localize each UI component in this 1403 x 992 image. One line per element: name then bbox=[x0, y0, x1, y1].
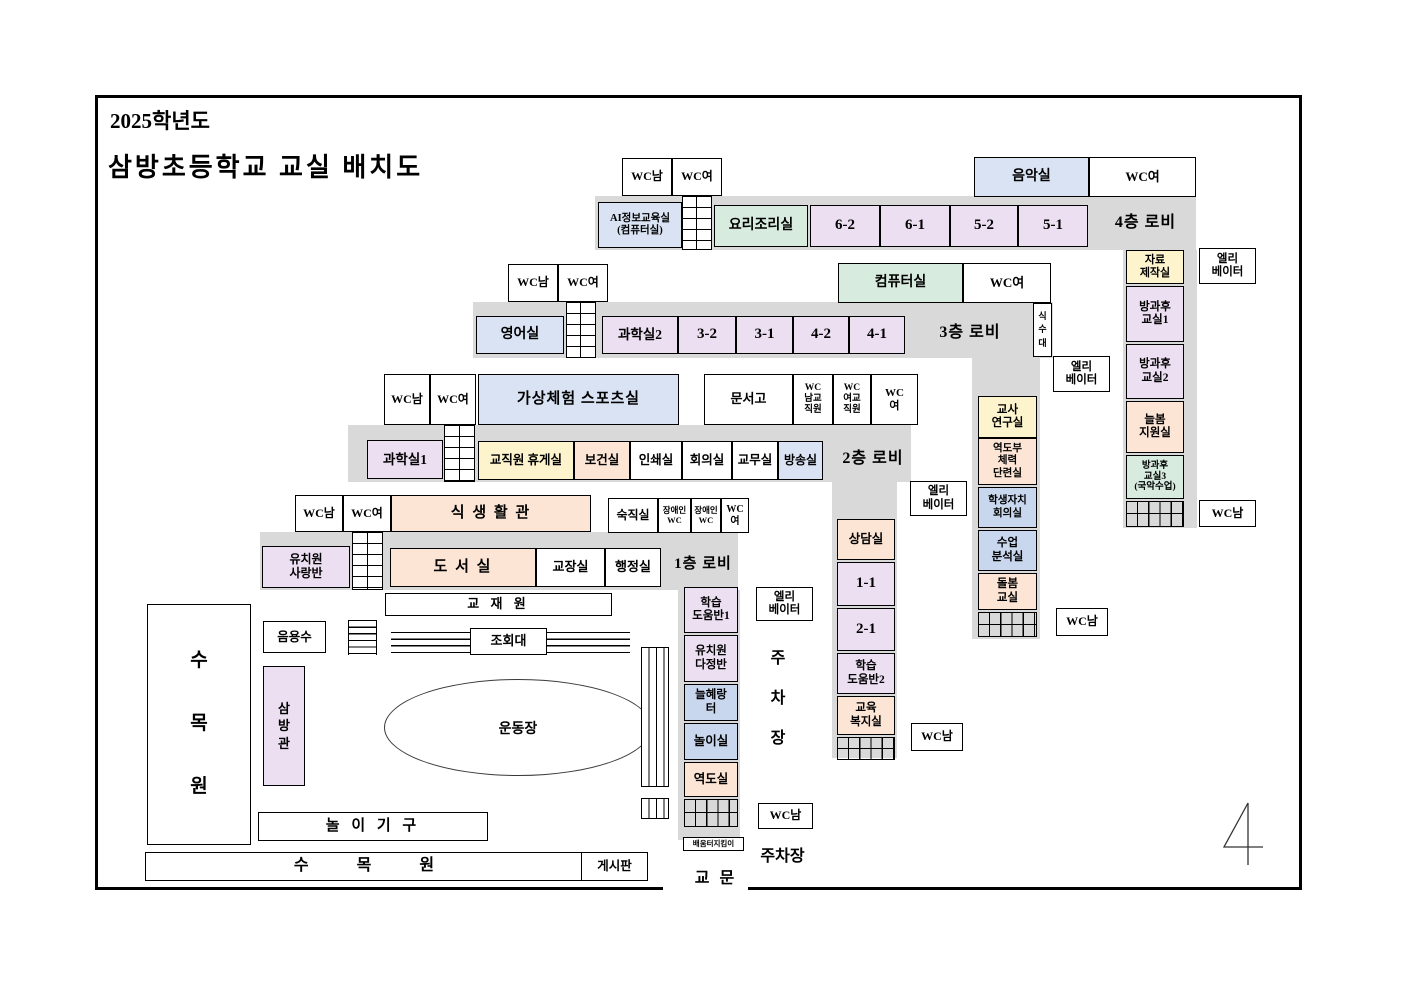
f3-lobby-label: 3층 로비 bbox=[925, 320, 1015, 346]
f1-wc-female: WC여 bbox=[343, 495, 391, 532]
school-gate-label: 교 문 bbox=[688, 869, 744, 889]
frame-top bbox=[95, 95, 1302, 98]
f3-wc-male: WC남 bbox=[508, 264, 558, 302]
room-science-2: 과학실2 bbox=[602, 316, 678, 354]
room-kinder-dajeong: 유치원 다정반 bbox=[684, 635, 738, 682]
play-equipment: 놀 이 기 구 bbox=[258, 812, 488, 841]
room-edu-welfare: 교육 복지실 bbox=[837, 696, 895, 735]
page-title: 삼방초등학교 교실 배치도 bbox=[108, 150, 528, 186]
f2-wc-staff-male: WC 남교 직원 bbox=[793, 374, 833, 425]
room-meeting: 회의실 bbox=[682, 441, 732, 480]
room-library: 도 서 실 bbox=[390, 548, 536, 587]
room-staff-lounge: 교직원 휴게실 bbox=[478, 441, 574, 480]
playfield-label: 운동장 bbox=[499, 718, 538, 738]
f3-wing-wc-male: WC남 bbox=[1056, 608, 1108, 636]
small-steps-icon bbox=[348, 620, 377, 655]
frame-right bbox=[1299, 95, 1302, 890]
f4-wing-stairs-icon bbox=[1126, 501, 1184, 527]
room-weightlifting-training: 역도부 체력 단련실 bbox=[978, 438, 1037, 485]
room-night-duty: 숙직실 bbox=[608, 498, 658, 533]
assembly-stand-lines-right bbox=[547, 632, 630, 653]
room-cooking: 요리조리실 bbox=[714, 205, 808, 247]
f2-wc-staff-female: WC 여교 직원 bbox=[833, 374, 871, 425]
frame-bottom-right bbox=[748, 887, 1302, 890]
room-lesson-analysis: 수업 분석실 bbox=[978, 530, 1037, 571]
room-5-1: 5-1 bbox=[1018, 205, 1088, 247]
f3-wc-female-right: WC여 bbox=[963, 263, 1051, 303]
room-5-2: 5-2 bbox=[950, 205, 1018, 247]
room-english: 영어실 bbox=[476, 316, 564, 354]
f2-wing-wc-male: WC남 bbox=[911, 723, 963, 751]
room-teachers-office: 교무실 bbox=[732, 441, 778, 480]
f3-wing-stairs-icon bbox=[978, 612, 1037, 637]
room-6-2: 6-2 bbox=[810, 205, 880, 247]
assembly-stand-lines-left bbox=[391, 632, 470, 653]
f4-elevator: 엘리 베이터 bbox=[1199, 248, 1256, 284]
room-material-making: 자료 제작실 bbox=[1126, 250, 1184, 284]
drinking-water: 음용수 bbox=[263, 621, 326, 653]
f2-lobby-label: 2층 로비 bbox=[833, 446, 913, 472]
room-ai-computer: AI정보교육실 (컴퓨터실) bbox=[598, 202, 682, 248]
bulletin-board: 게시판 bbox=[581, 852, 648, 881]
assembly-stand: 조회대 bbox=[470, 628, 547, 655]
teaching-materials-garden: 교 재 원 bbox=[385, 593, 612, 616]
f3-stairs-icon bbox=[566, 302, 596, 358]
room-music: 음악실 bbox=[974, 157, 1089, 197]
room-weightlifting: 역도실 bbox=[684, 762, 738, 797]
arboretum-left: 수 목 원 bbox=[147, 604, 251, 845]
f1-stairs-icon bbox=[352, 532, 383, 590]
room-learning-help-1: 학습 도움반1 bbox=[684, 587, 738, 633]
f2-elevator: 엘리 베이터 bbox=[910, 481, 967, 516]
parking-side-label: 주 차 장 bbox=[763, 643, 793, 755]
f3-water-fountain: 식 수 대 bbox=[1033, 303, 1052, 357]
room-afterschool-1: 방과후 교실1 bbox=[1126, 286, 1184, 342]
room-dining-hall: 식 생 활 관 bbox=[391, 495, 591, 532]
f2-wing-stairs-icon bbox=[837, 737, 895, 760]
room-kinder-sarang: 유치원 사랑반 bbox=[262, 546, 350, 588]
room-admin: 행정실 bbox=[605, 548, 661, 587]
f4-stairs-icon bbox=[682, 196, 712, 250]
room-1-1: 1-1 bbox=[837, 562, 895, 606]
f2-wc-female: WC여 bbox=[430, 374, 476, 425]
room-broadcast: 방송실 bbox=[778, 441, 823, 480]
f4-wc-female: WC여 bbox=[672, 158, 722, 196]
room-health: 보건실 bbox=[574, 441, 630, 480]
room-computer: 컴퓨터실 bbox=[838, 263, 963, 303]
guard-post: 배움터지킴이 bbox=[683, 837, 744, 851]
room-archive: 문서고 bbox=[704, 374, 793, 425]
f4-wc-female-right: WC여 bbox=[1089, 157, 1196, 197]
room-afterschool-3: 방과후 교실3 (국악수업) bbox=[1126, 455, 1184, 499]
room-afterschool-2: 방과후 교실2 bbox=[1126, 344, 1184, 399]
room-student-council: 학생자치 회의실 bbox=[978, 487, 1037, 528]
f1-wc-male: WC남 bbox=[295, 495, 343, 532]
school-year: 2025학년도 bbox=[110, 106, 310, 136]
parking-label: 주차장 bbox=[750, 847, 815, 867]
room-counseling: 상담실 bbox=[837, 519, 895, 560]
arboretum-bottom: 수 목 원 bbox=[145, 852, 583, 881]
room-science-1: 과학실1 bbox=[367, 440, 443, 479]
f2-wc-male: WC남 bbox=[384, 374, 430, 425]
f3-wc-female: WC여 bbox=[558, 264, 608, 302]
f1-wing-stairs-icon bbox=[684, 799, 738, 827]
f1-lobby-label: 1층 로비 bbox=[668, 552, 738, 578]
f1-wc-female-right: WC 여 bbox=[721, 498, 749, 533]
f4-lobby-label: 4층 로비 bbox=[1098, 210, 1193, 236]
sambang-hall: 삼 방 관 bbox=[263, 666, 305, 786]
room-6-1: 6-1 bbox=[880, 205, 950, 247]
f2-wc-female-right: WC 여 bbox=[871, 374, 918, 425]
room-learning-help-2: 학습 도움반2 bbox=[837, 653, 895, 694]
room-4-2: 4-2 bbox=[793, 316, 849, 354]
room-print: 인쇄실 bbox=[630, 441, 682, 480]
f1-wc-disabled-2: 장애인 WC bbox=[691, 498, 721, 533]
f1-wing-wc-male: WC남 bbox=[758, 803, 813, 829]
room-dolbom-class: 돌봄 교실 bbox=[978, 573, 1037, 610]
bleachers-small bbox=[641, 798, 669, 819]
room-neulbom-support: 늘봄 지원실 bbox=[1126, 401, 1184, 453]
room-3-2: 3-2 bbox=[678, 316, 736, 354]
room-vr-sports: 가상체험 스포츠실 bbox=[478, 374, 679, 425]
room-2-1: 2-1 bbox=[837, 608, 895, 651]
room-neulhaerang: 늘혜랑 터 bbox=[684, 684, 738, 721]
f2-stairs-icon bbox=[444, 425, 475, 482]
playfield-ellipse: 운동장 bbox=[384, 679, 652, 776]
f4-wc-male: WC남 bbox=[622, 158, 672, 196]
room-teacher-research: 교사 연구실 bbox=[978, 396, 1037, 438]
f3-elevator: 엘리 베이터 bbox=[1053, 356, 1110, 392]
f4-wing-wc-male: WC남 bbox=[1199, 500, 1256, 527]
page-number-4 bbox=[1208, 780, 1298, 875]
room-principal: 교장실 bbox=[536, 548, 605, 587]
room-playroom: 놀이실 bbox=[684, 723, 738, 760]
frame-bottom-left bbox=[95, 887, 663, 890]
f1-elevator: 엘리 베이터 bbox=[756, 587, 813, 621]
frame-left bbox=[95, 95, 98, 890]
bleachers-tall bbox=[641, 647, 669, 787]
room-4-1: 4-1 bbox=[849, 316, 905, 354]
f1-wc-disabled-1: 장애인 WC bbox=[658, 498, 691, 533]
room-3-1: 3-1 bbox=[736, 316, 793, 354]
